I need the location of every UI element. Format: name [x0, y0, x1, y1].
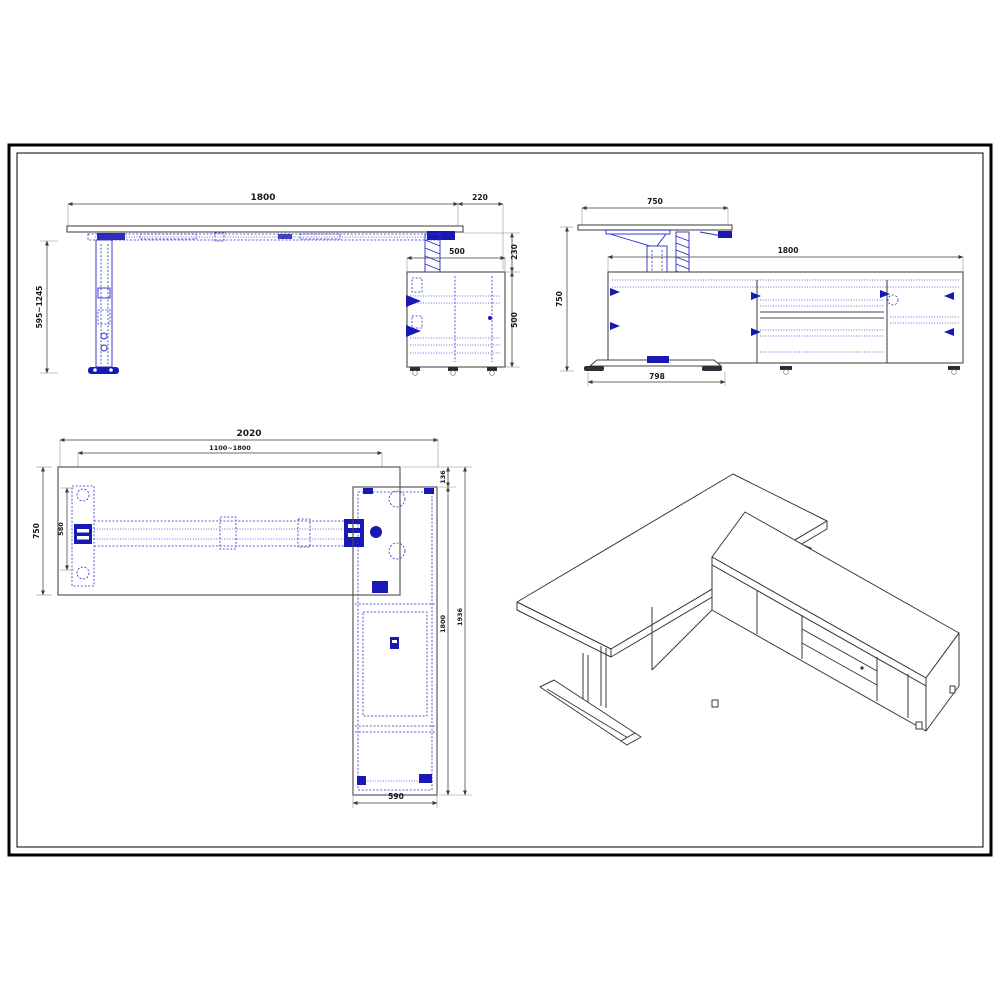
dim-front-cabinet-overhang: 220	[472, 193, 488, 202]
dim-front-cabinet-height: 500	[510, 312, 519, 328]
plan-view: 2020 1100~1800	[32, 429, 472, 808]
iso-leg	[540, 646, 641, 745]
dim-plan-rear-offset: 136	[439, 470, 447, 484]
dim-plan-cabinet-length: 1800	[439, 614, 447, 633]
iso-view	[517, 474, 959, 745]
dim-front-height-range: 595~1245	[35, 286, 44, 329]
front-cabinet	[406, 272, 505, 375]
dim-front-cabinet-width: 500	[449, 247, 465, 256]
dim-front-desk-width: 1800	[250, 193, 275, 203]
front-left-leg	[88, 240, 119, 374]
iso-keyhole	[860, 666, 863, 669]
dim-plan-frame-depth: 580	[57, 522, 65, 536]
front-view: 1800 220	[35, 193, 520, 375]
drawing-sheet-svg: 1800 220	[0, 0, 1000, 1000]
dim-plan-overall-width: 2020	[236, 429, 261, 439]
dim-side-desk-depth: 750	[647, 197, 663, 206]
dim-front-desktop-to-cabinet: 230	[510, 244, 519, 260]
side-view: 750	[555, 197, 963, 386]
front-desktop	[67, 226, 463, 232]
dim-plan-cabinet-depth: 590	[388, 792, 404, 801]
dim-side-foot-length: 798	[649, 372, 665, 381]
dim-side-desk-height: 750	[555, 291, 564, 307]
dim-plan-desk-depth: 750	[32, 523, 41, 539]
dim-plan-overall-depth: 1936	[456, 607, 464, 626]
dim-plan-frame-width-range: 1100~1800	[209, 444, 251, 452]
side-desktop	[578, 225, 732, 230]
dim-side-cabinet-length: 1800	[778, 246, 799, 255]
drawing-page: 1800 220	[0, 0, 1000, 1000]
